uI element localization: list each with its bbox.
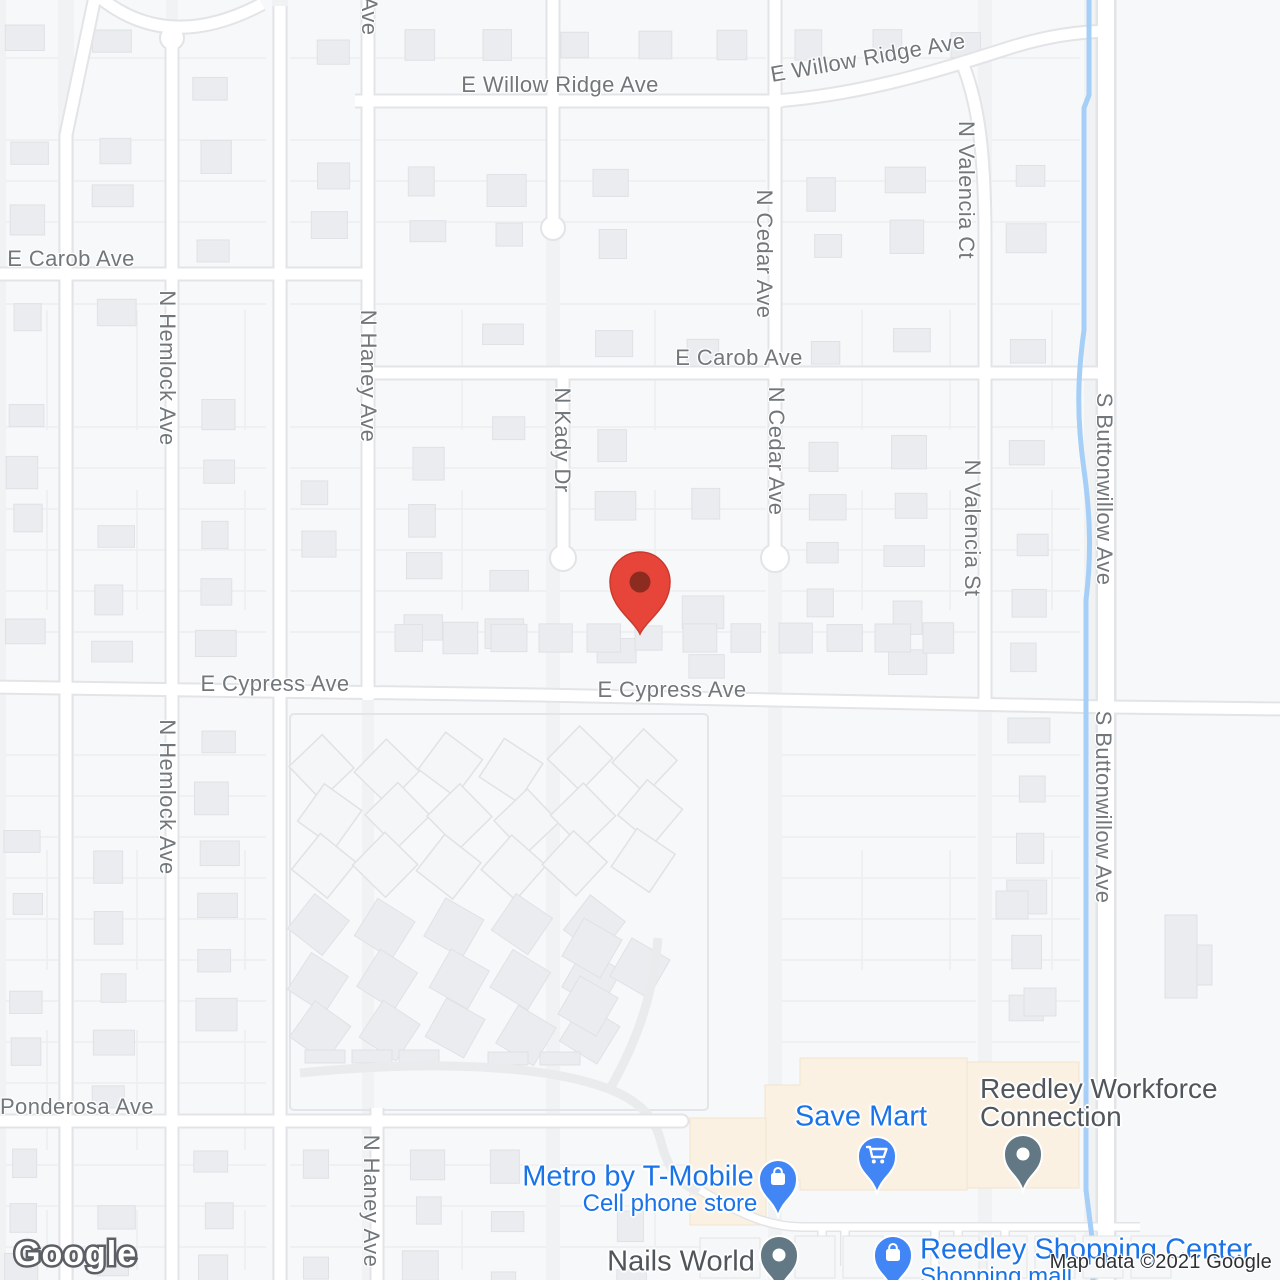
place-pin-icon[interactable] [999, 1131, 1047, 1195]
poi-label[interactable]: Connection [980, 1101, 1122, 1133]
dropped-pin-marker[interactable] [602, 548, 678, 644]
street-label: E Willow Ridge Ave [461, 72, 659, 98]
marker-hole [630, 572, 651, 593]
google-logo[interactable]: Google [6, 1230, 156, 1276]
street-label: E Carob Ave [7, 246, 135, 272]
street-label: Ave [356, 0, 382, 35]
street-label: N Haney Ave [355, 310, 381, 442]
poi-label[interactable]: Metro by T-Mobile [522, 1161, 754, 1194]
map-attribution: Map data ©2021 Google [1050, 1251, 1272, 1274]
street-label: S Buttonwillow Ave [1090, 711, 1116, 904]
street-label: E Carob Ave [675, 345, 803, 371]
poi-label[interactable]: Save Mart [795, 1101, 927, 1134]
street-label: E Cypress Ave [597, 677, 746, 703]
street-label: S Buttonwillow Ave [1091, 393, 1117, 586]
street-label: Ponderosa Ave [0, 1094, 154, 1120]
shopping-pin-icon[interactable] [869, 1232, 917, 1280]
street-label: N Cedar Ave [751, 190, 777, 319]
map-canvas[interactable]: E Willow Ridge AveE Willow Ridge AveN Va… [0, 0, 1280, 1280]
street-label: N Valencia Ct [953, 121, 979, 259]
street-label: N Valencia St [959, 460, 985, 597]
google-logo-text: Google [14, 1235, 137, 1273]
marker-body [610, 552, 670, 634]
poi-label[interactable]: Cell phone store [583, 1190, 758, 1218]
street-label: N Cedar Ave [763, 387, 789, 516]
street-label: N Hemlock Ave [154, 290, 180, 445]
street-label: N Hemlock Ave [154, 719, 180, 874]
street-label: N Haney Ave [358, 1135, 384, 1267]
shopping-pin-icon[interactable] [853, 1133, 901, 1197]
street-label: E Cypress Ave [200, 671, 349, 697]
place-pin-icon[interactable] [755, 1232, 803, 1280]
poi-label[interactable]: Nails World [607, 1246, 755, 1279]
street-label: N Kady Dr [549, 387, 575, 492]
shopping-pin-icon[interactable] [754, 1156, 802, 1220]
